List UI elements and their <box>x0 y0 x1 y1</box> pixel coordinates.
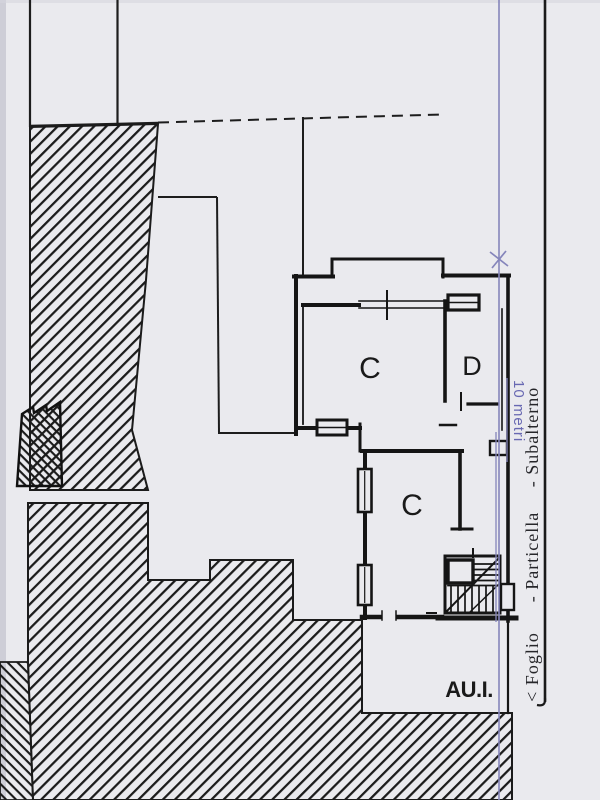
stair-door <box>501 584 514 610</box>
room-label-c-upper: C <box>359 352 381 385</box>
floor-plan-drawing: C D C AU.I. 10 metri - Subalterno - Part… <box>0 0 600 800</box>
room-label-d: D <box>462 351 482 381</box>
stair-landing <box>448 560 473 583</box>
paper-top-edge-shadow <box>0 0 600 3</box>
hatched-area-wedge <box>17 402 62 486</box>
room-label-c-lower: C <box>401 489 423 522</box>
scanned-floor-plan-page: C D C AU.I. 10 metri - Subalterno - Part… <box>0 0 600 800</box>
caption-foglio: < Foglio <box>522 632 542 702</box>
caption-particella: - Particella <box>522 512 542 602</box>
courtyard-label-aui: AU.I. <box>445 677 493 702</box>
caption-subalterno: - Subalterno <box>522 387 542 487</box>
hatched-area-corner <box>0 662 33 800</box>
